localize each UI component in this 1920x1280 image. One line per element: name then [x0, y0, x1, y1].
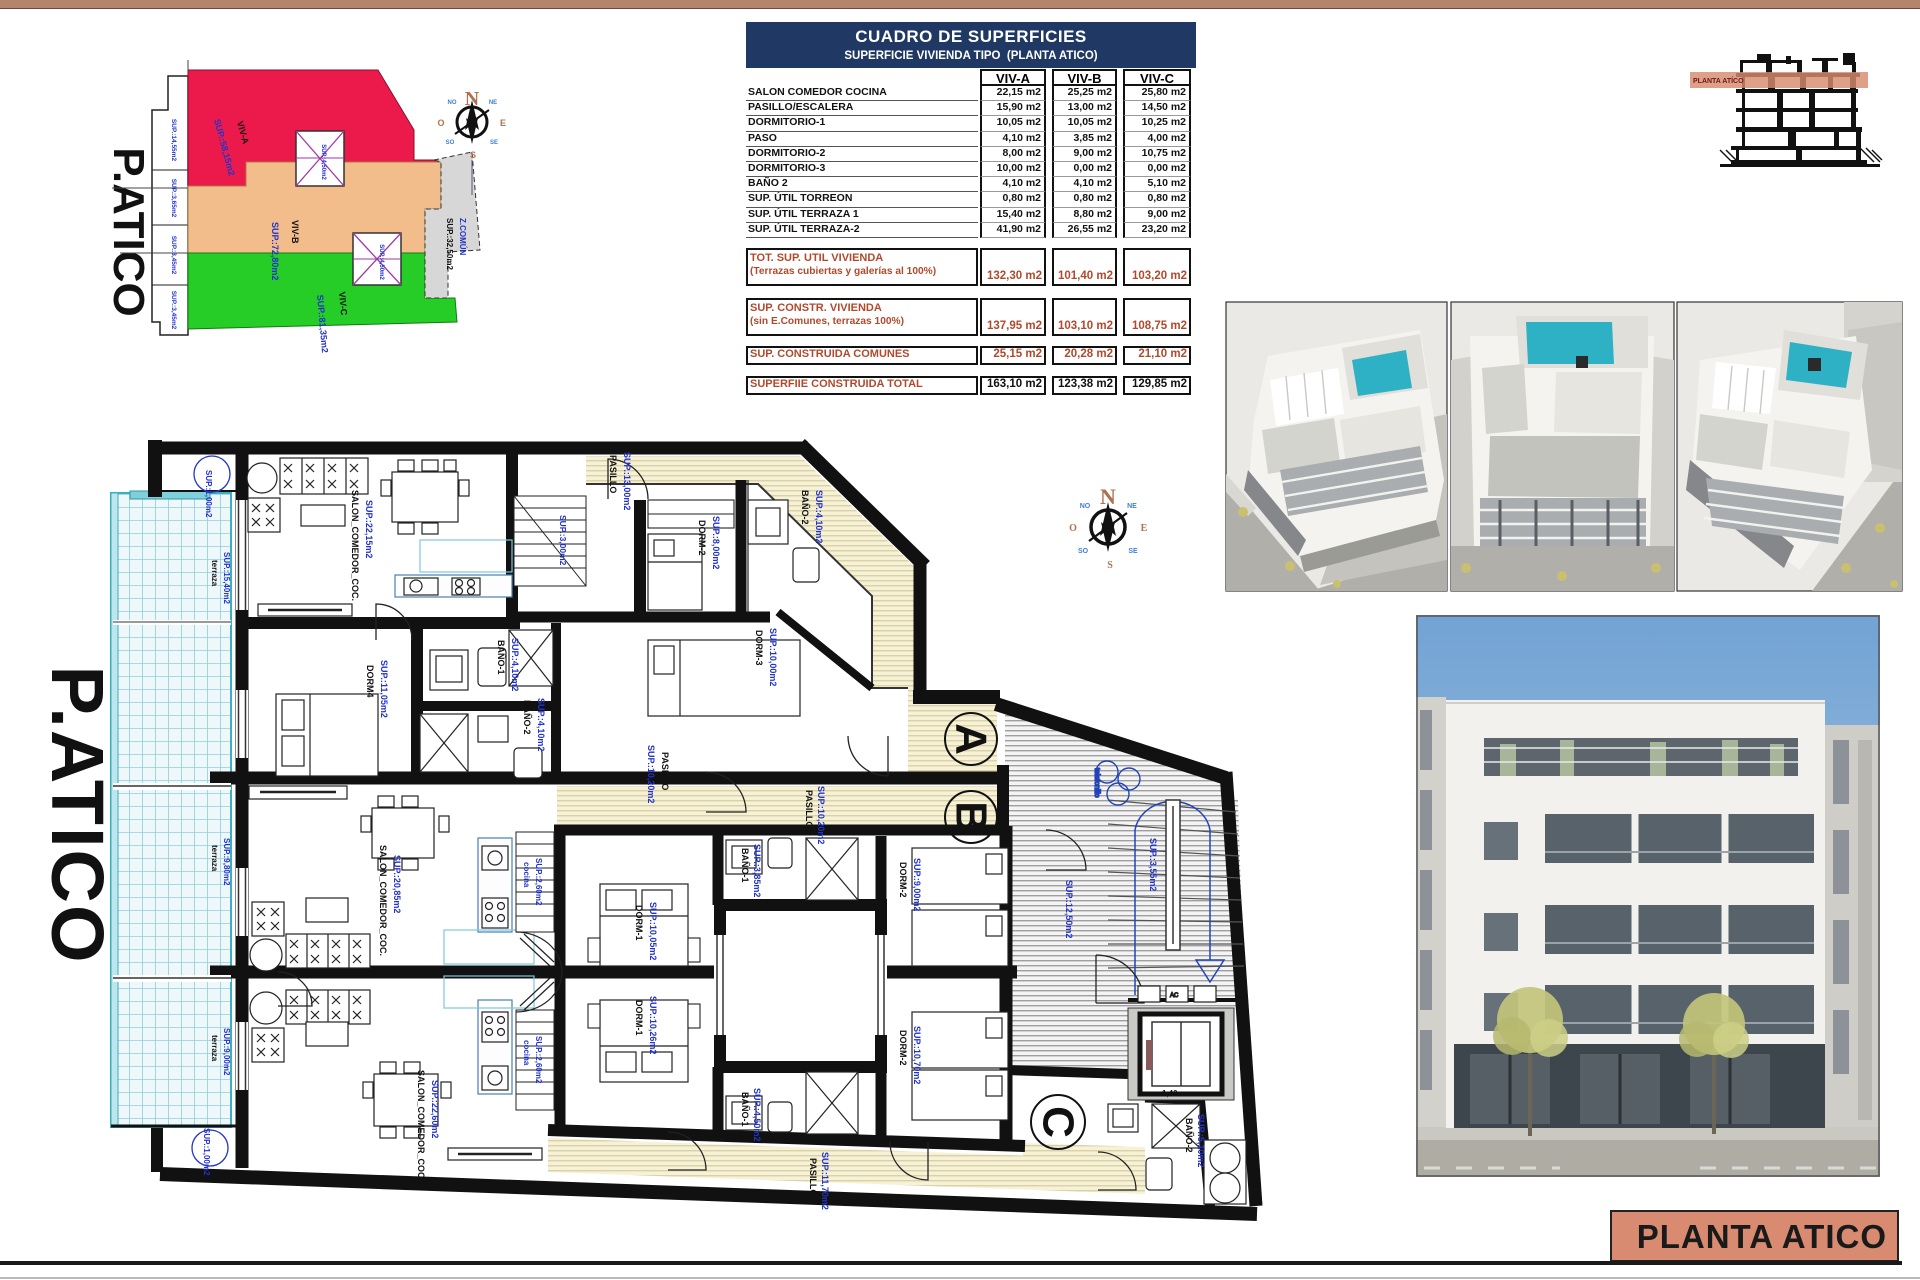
svg-text:SE: SE — [1128, 548, 1138, 555]
svg-text:SUP.:10,20m2: SUP.:10,20m2 — [646, 745, 656, 803]
svg-text:S: S — [1107, 560, 1113, 571]
svg-text:SUP.:10,70m2: SUP.:10,70m2 — [912, 1026, 922, 1084]
svg-text:BAÑO-1: BAÑO-1 — [740, 1092, 750, 1127]
svg-text:DORM-3: DORM-3 — [754, 630, 764, 666]
svg-text:SUP.:5,10m2: SUP.:5,10m2 — [1196, 1114, 1206, 1167]
svg-text:SALON_COMEDOR_COC.: SALON_COMEDOR_COC. — [416, 1070, 426, 1181]
svg-text:telefonillo: telefonillo — [1093, 768, 1100, 798]
svg-text:SUP.:11,70m2: SUP.:11,70m2 — [820, 1152, 830, 1210]
svg-text:terraza: terraza — [210, 560, 219, 587]
svg-text:AC: AC — [1170, 993, 1179, 999]
svg-text:SUP.:4,10m2: SUP.:4,10m2 — [814, 490, 824, 543]
svg-text:BAÑO-1: BAÑO-1 — [740, 848, 750, 883]
svg-text:BAÑO-2: BAÑO-2 — [800, 490, 810, 525]
svg-text:cocina: cocina — [522, 1040, 531, 1066]
svg-text:SUP.:12,50m2: SUP.:12,50m2 — [1064, 880, 1074, 938]
svg-text:SUP.:13,00m2: SUP.:13,00m2 — [622, 452, 632, 510]
svg-text:O: O — [1069, 523, 1077, 534]
svg-text:DORM4: DORM4 — [365, 665, 375, 698]
svg-text:SUP.:1,00m2: SUP.:1,00m2 — [202, 1128, 211, 1176]
svg-text:SUP.:9,80m2: SUP.:9,80m2 — [222, 838, 231, 886]
svg-text:SUP.:11,05m2: SUP.:11,05m2 — [379, 660, 389, 718]
svg-text:BAÑO-1: BAÑO-1 — [496, 640, 506, 675]
svg-text:SUP.:10,05m2: SUP.:10,05m2 — [648, 902, 658, 960]
svg-text:SUP.:10,26m2: SUP.:10,26m2 — [648, 996, 658, 1054]
svg-text:DORM-1: DORM-1 — [634, 905, 644, 941]
svg-text:SUP.:9,00m2: SUP.:9,00m2 — [912, 858, 922, 911]
svg-text:SUP.:3,00m2: SUP.:3,00m2 — [558, 515, 568, 566]
svg-text:PASILLO: PASILLO — [660, 752, 670, 790]
svg-text:SUP.:4,10m2: SUP.:4,10m2 — [536, 698, 546, 751]
svg-text:SUP.:20,85m2: SUP.:20,85m2 — [392, 855, 402, 913]
svg-text:SUP.:2,60m2: SUP.:2,60m2 — [534, 858, 543, 906]
svg-text:SUP.:8,00m2: SUP.:8,00m2 — [711, 516, 721, 569]
svg-text:SUP.:10,00m2: SUP.:10,00m2 — [768, 628, 778, 686]
svg-text:SUP.:4,10m2: SUP.:4,10m2 — [510, 638, 520, 691]
svg-text:SUP.:15,40m2: SUP.:15,40m2 — [222, 552, 231, 604]
svg-text:SUP.:9,00m2: SUP.:9,00m2 — [222, 1028, 231, 1076]
svg-text:DORM-2: DORM-2 — [898, 862, 908, 898]
svg-text:DORM-2: DORM-2 — [697, 520, 707, 556]
svg-text:SO: SO — [1078, 548, 1089, 555]
svg-text:SUP.:4,50m2: SUP.:4,50m2 — [752, 1088, 762, 1141]
svg-text:NE: NE — [1127, 503, 1137, 510]
svg-text:SUP.:22,15m2: SUP.:22,15m2 — [364, 500, 374, 558]
svg-text:SUP.:3,55m2: SUP.:3,55m2 — [1148, 838, 1158, 891]
svg-text:cocina: cocina — [522, 862, 531, 888]
svg-text:terraza: terraza — [210, 845, 219, 872]
svg-text:SUP.:22,60m2: SUP.:22,60m2 — [430, 1080, 440, 1138]
svg-text:SUP.:10,20m2: SUP.:10,20m2 — [816, 786, 826, 844]
svg-text:BAÑO-2: BAÑO-2 — [1184, 1118, 1194, 1153]
svg-text:E: E — [1141, 523, 1148, 534]
svg-text:DORM-1: DORM-1 — [634, 1000, 644, 1036]
svg-text:BAÑO-2: BAÑO-2 — [522, 700, 532, 735]
svg-text:DORM-2: DORM-2 — [898, 1030, 908, 1066]
svg-text:P.ATICO: P.ATICO — [36, 665, 119, 964]
svg-text:PASILLO: PASILLO — [608, 455, 618, 493]
svg-text:SUP.:3,85m2: SUP.:3,85m2 — [752, 844, 762, 897]
svg-text:C: C — [1034, 1106, 1083, 1138]
svg-text:SUP.:2,60m2: SUP.:2,60m2 — [534, 1036, 543, 1084]
svg-text:SALON_COMEDOR_COC.: SALON_COMEDOR_COC. — [350, 490, 360, 601]
svg-text:PASILLO: PASILLO — [804, 790, 814, 828]
svg-text:SUP.:1,00m2: SUP.:1,00m2 — [204, 470, 213, 518]
svg-text:B: B — [947, 801, 996, 833]
svg-text:A: A — [947, 723, 996, 755]
svg-text:SALON_COMEDOR_COC.: SALON_COMEDOR_COC. — [378, 845, 388, 956]
svg-text:PASILLO: PASILLO — [808, 1158, 818, 1196]
svg-text:NO: NO — [1080, 503, 1091, 510]
svg-text:1,40: 1,40 — [1162, 1089, 1178, 1098]
svg-text:terraza: terraza — [210, 1035, 219, 1062]
